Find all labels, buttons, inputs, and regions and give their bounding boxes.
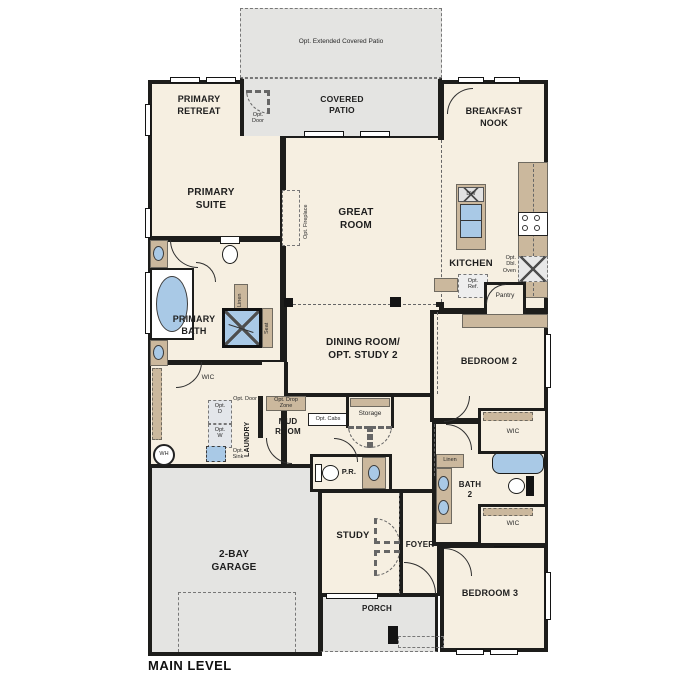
- sink-icon: [438, 500, 449, 515]
- storage-shelf: [350, 398, 390, 407]
- mud-room-label: MUD ROOM: [266, 417, 310, 438]
- water-heater-label: WH: [155, 451, 173, 457]
- bath2-hall-dashed: [434, 424, 435, 476]
- foyer-arch-dashed-bottom: [399, 562, 400, 594]
- wic-shelf: [152, 368, 162, 440]
- opt-sink-icon: [206, 446, 226, 462]
- wic-bed3-label: WIC: [478, 520, 548, 527]
- toilet-icon: [220, 236, 240, 244]
- window: [458, 77, 484, 83]
- bath2-label: BATH 2: [452, 480, 488, 501]
- wic-shelf: [483, 412, 533, 421]
- wic-bed2-label: WIC: [478, 428, 548, 435]
- toilet-icon: [322, 465, 339, 481]
- toilet-tank: [526, 476, 534, 496]
- sink-icon: [153, 345, 164, 360]
- window: [360, 131, 390, 137]
- burner-icon: [522, 225, 528, 231]
- sink-icon: [438, 476, 449, 491]
- opt-drop-zone-label: Opt. Drop Zone: [266, 397, 306, 410]
- primary-suite-label: PRIMARY SUITE: [165, 186, 257, 212]
- dining-label: DINING ROOM/ OPT. STUDY 2: [290, 336, 436, 362]
- garage-label: 2-BAY GARAGE: [182, 548, 286, 574]
- sink-icon: [368, 465, 380, 481]
- burner-icon: [534, 225, 540, 231]
- window: [206, 77, 236, 83]
- wic-primary-label: WIC: [190, 374, 226, 381]
- window: [494, 77, 520, 83]
- foyer-arch-dashed-top: [399, 493, 400, 527]
- laundry-label: LAUNDRY: [243, 414, 252, 464]
- bedroom2-label: BEDROOM 2: [438, 356, 540, 368]
- window: [545, 334, 551, 388]
- sink-icon: [153, 246, 164, 261]
- garage-door-dashed: [178, 592, 296, 652]
- porch-step-dashed: [398, 636, 444, 648]
- window: [304, 131, 344, 137]
- porch-post: [388, 626, 398, 644]
- opt-door-patio-label: Opt. Door: [247, 112, 269, 125]
- primary-bath-label: PRIMARY BATH: [152, 314, 236, 337]
- opt-washer-label: Opt. W: [208, 427, 232, 440]
- opt-fireplace-box: [282, 190, 300, 246]
- kitchen-sink-icon: [460, 204, 482, 238]
- powder-room-label: P.R.: [338, 467, 360, 477]
- study-label: STUDY: [317, 530, 389, 542]
- tub-icon: [492, 452, 544, 474]
- window: [545, 572, 551, 620]
- window: [456, 649, 484, 655]
- primary-retreat-label: PRIMARY RETREAT: [157, 94, 241, 117]
- opt-cabs-label: Opt. Cabs: [308, 416, 348, 422]
- plan-title: MAIN LEVEL: [148, 658, 232, 673]
- opt-extended-patio-label: Opt. Extended Covered Patio: [240, 38, 442, 45]
- laundry-corner-patch: [262, 362, 288, 398]
- kitchen-label: KITCHEN: [435, 258, 507, 270]
- floor-plan: Opt. Extended Covered Patio: [0, 0, 687, 687]
- dishwasher-label: DW: [458, 191, 484, 197]
- kitchen-cabinet: [434, 278, 458, 292]
- window: [145, 104, 151, 136]
- wic-shelf: [483, 508, 533, 516]
- burner-icon: [522, 215, 528, 221]
- linen-bath2-label: Linen: [436, 457, 464, 463]
- pantry-shelf-wall: [462, 314, 548, 328]
- opt-dryer-label: Opt. D: [208, 403, 232, 416]
- window: [326, 593, 378, 599]
- opt-door-laundry-label: Opt. Door: [228, 396, 262, 402]
- column-post: [390, 297, 401, 307]
- opt-fireplace-label: Opt. Fireplace: [303, 194, 309, 250]
- window: [145, 208, 151, 238]
- seat-label: Seat: [264, 314, 270, 342]
- covered-patio-label: COVERED PATIO: [297, 94, 387, 116]
- toilet-icon: [315, 464, 322, 482]
- bedroom3-label: BEDROOM 3: [438, 588, 542, 600]
- opt-double-oven-icon: [518, 256, 548, 282]
- column-post: [284, 298, 293, 307]
- bedroom2-hall-dashed: [437, 312, 438, 394]
- window: [490, 649, 518, 655]
- window: [170, 77, 200, 83]
- great-dining-dashed-line: [288, 304, 436, 305]
- great-room-label: GREAT ROOM: [314, 206, 398, 232]
- burner-icon: [534, 215, 540, 221]
- toilet-icon: [508, 478, 525, 494]
- foyer-label: FOYER: [396, 540, 444, 550]
- porch-label: PORCH: [341, 604, 413, 614]
- breakfast-nook-label: BREAKFAST NOOK: [447, 106, 541, 129]
- storage-label: Storage: [346, 410, 394, 417]
- sink-divider: [461, 220, 481, 221]
- toilet-icon: [222, 245, 238, 264]
